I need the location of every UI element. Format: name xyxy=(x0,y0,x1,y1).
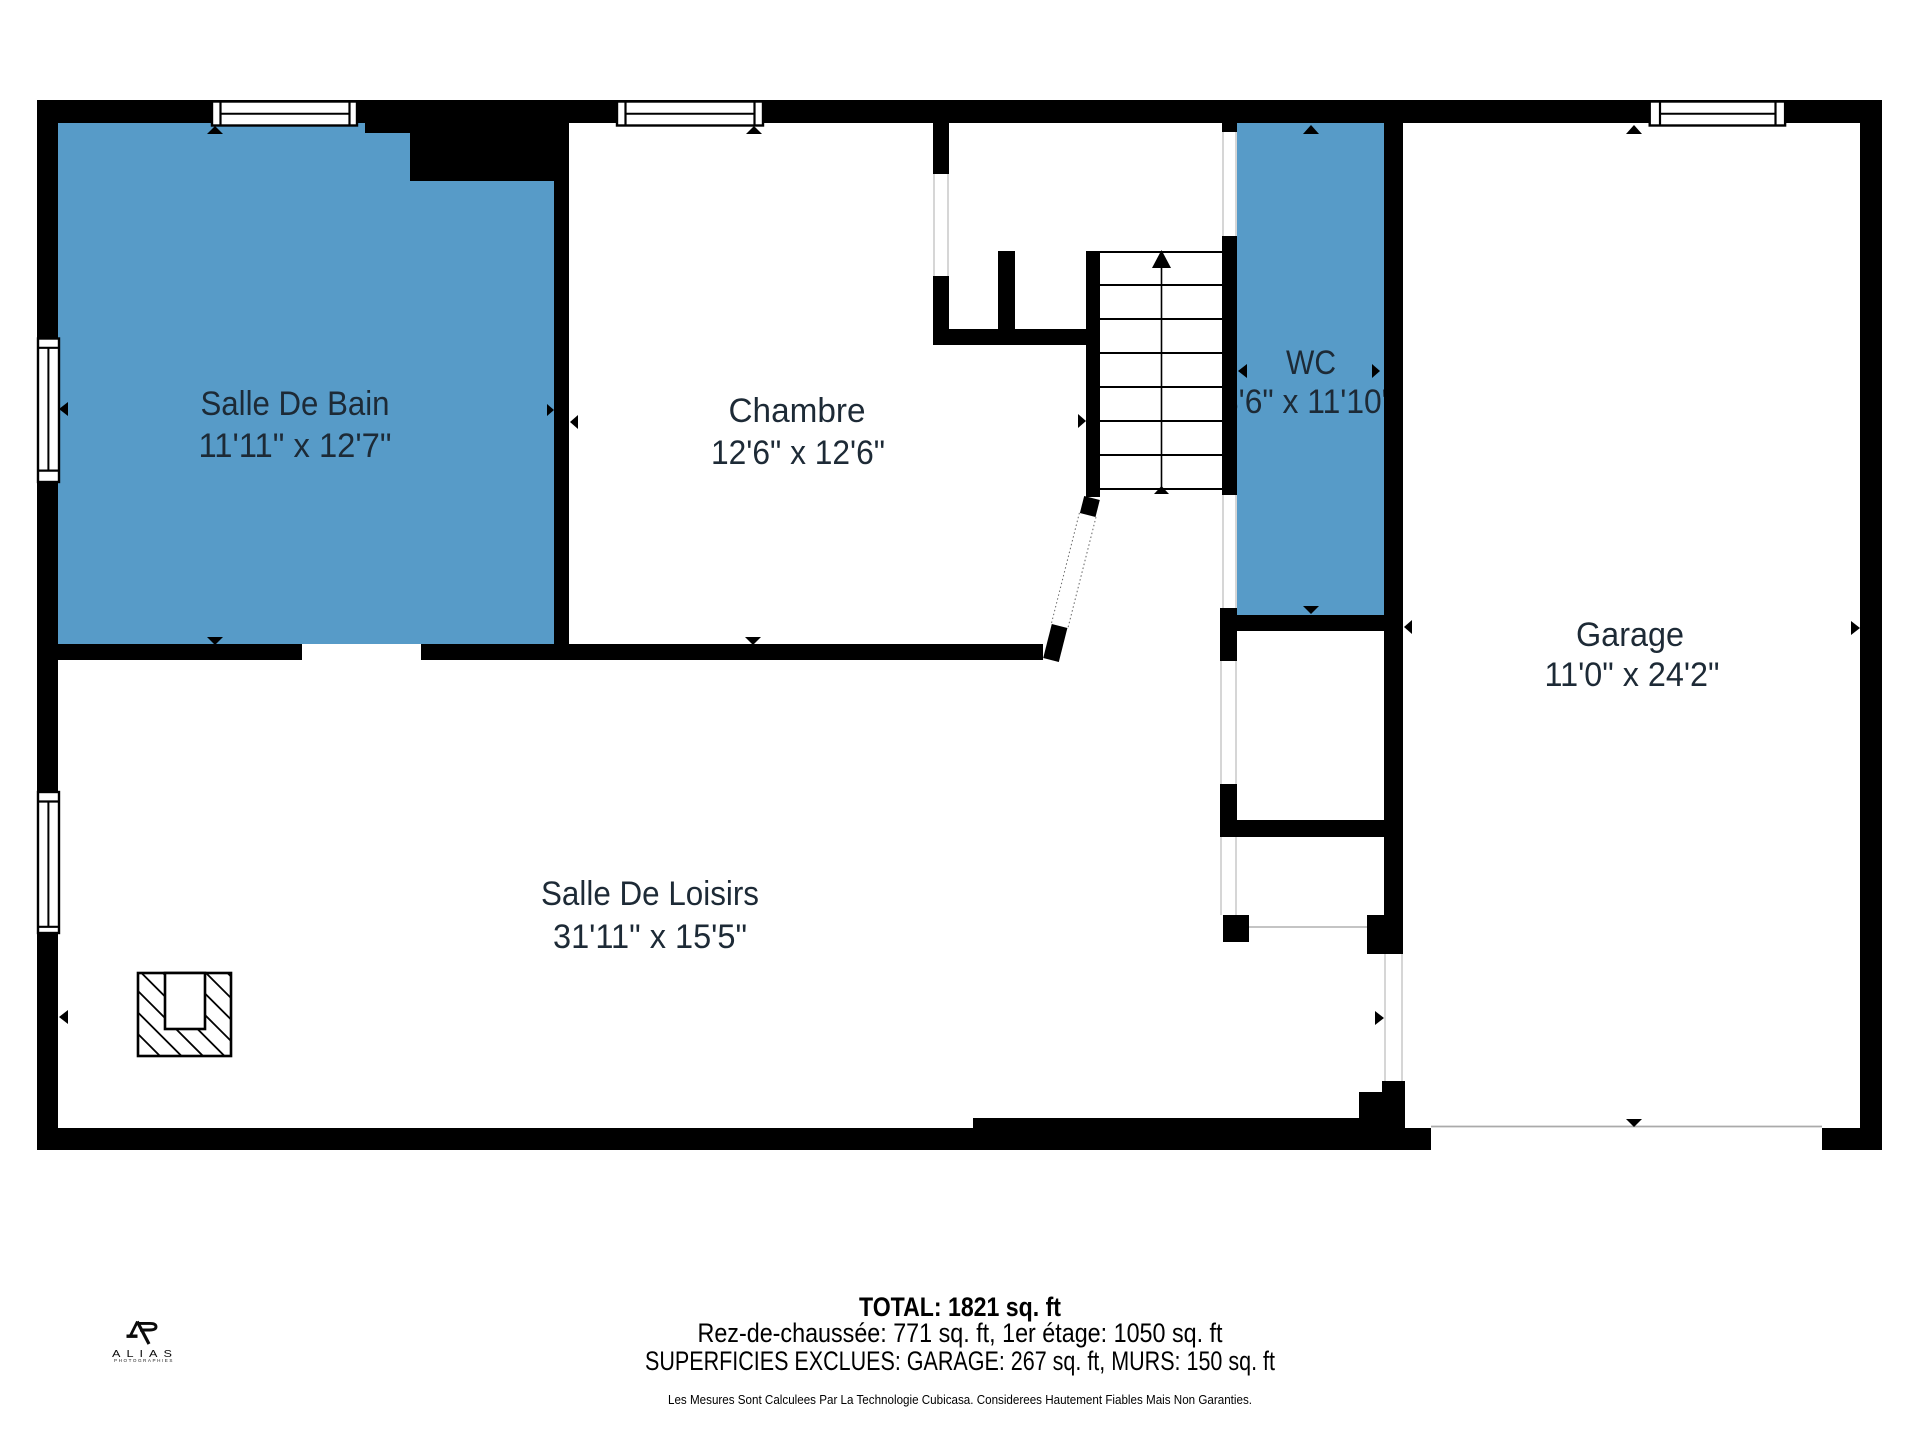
svg-text:Salle De Bain: Salle De Bain xyxy=(201,385,390,423)
svg-text:11'0" x 24'2": 11'0" x 24'2" xyxy=(1545,656,1720,694)
svg-text:Les Mesures Sont Calculees Par: Les Mesures Sont Calculees Par La Techno… xyxy=(668,1393,1252,1407)
svg-text:11'11" x 12'7": 11'11" x 12'7" xyxy=(199,427,392,465)
svg-text:12'6" x 12'6": 12'6" x 12'6" xyxy=(711,434,885,472)
svg-text:Rez-de-chaussée: 771 sq. ft, 1: Rez-de-chaussée: 771 sq. ft, 1er étage: … xyxy=(698,1318,1223,1348)
svg-text:Garage: Garage xyxy=(1576,616,1684,654)
svg-text:Chambre: Chambre xyxy=(729,392,866,430)
svg-text:31'11" x 15'5": 31'11" x 15'5" xyxy=(553,918,747,956)
svg-text:PHOTOGRAPHIES: PHOTOGRAPHIES xyxy=(114,1358,174,1363)
svg-text:Salle De Loisirs: Salle De Loisirs xyxy=(541,875,759,913)
svg-text:WC: WC xyxy=(1286,344,1336,382)
svg-text:SUPERFICIES EXCLUES: GARAGE: 2: SUPERFICIES EXCLUES: GARAGE: 267 sq. ft,… xyxy=(645,1346,1275,1376)
svg-text:3'6" x 11'10": 3'6" x 11'10" xyxy=(1221,383,1393,421)
